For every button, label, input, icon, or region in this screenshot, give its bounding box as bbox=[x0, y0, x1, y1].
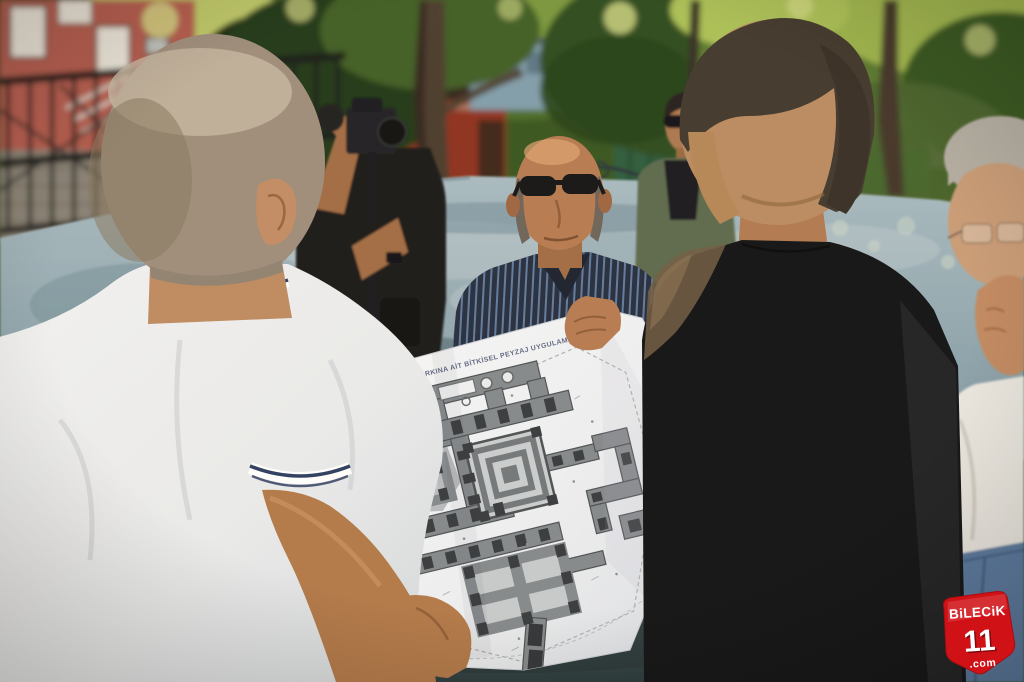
watermark-domain: .com bbox=[969, 657, 997, 671]
vignette-overlay bbox=[0, 0, 1024, 682]
photo-scene: DİNGİLLİOĞLU PARKINA AİT BİTKİSEL PEYZAJ… bbox=[0, 0, 1024, 682]
watermark-number: 11 bbox=[962, 624, 996, 659]
